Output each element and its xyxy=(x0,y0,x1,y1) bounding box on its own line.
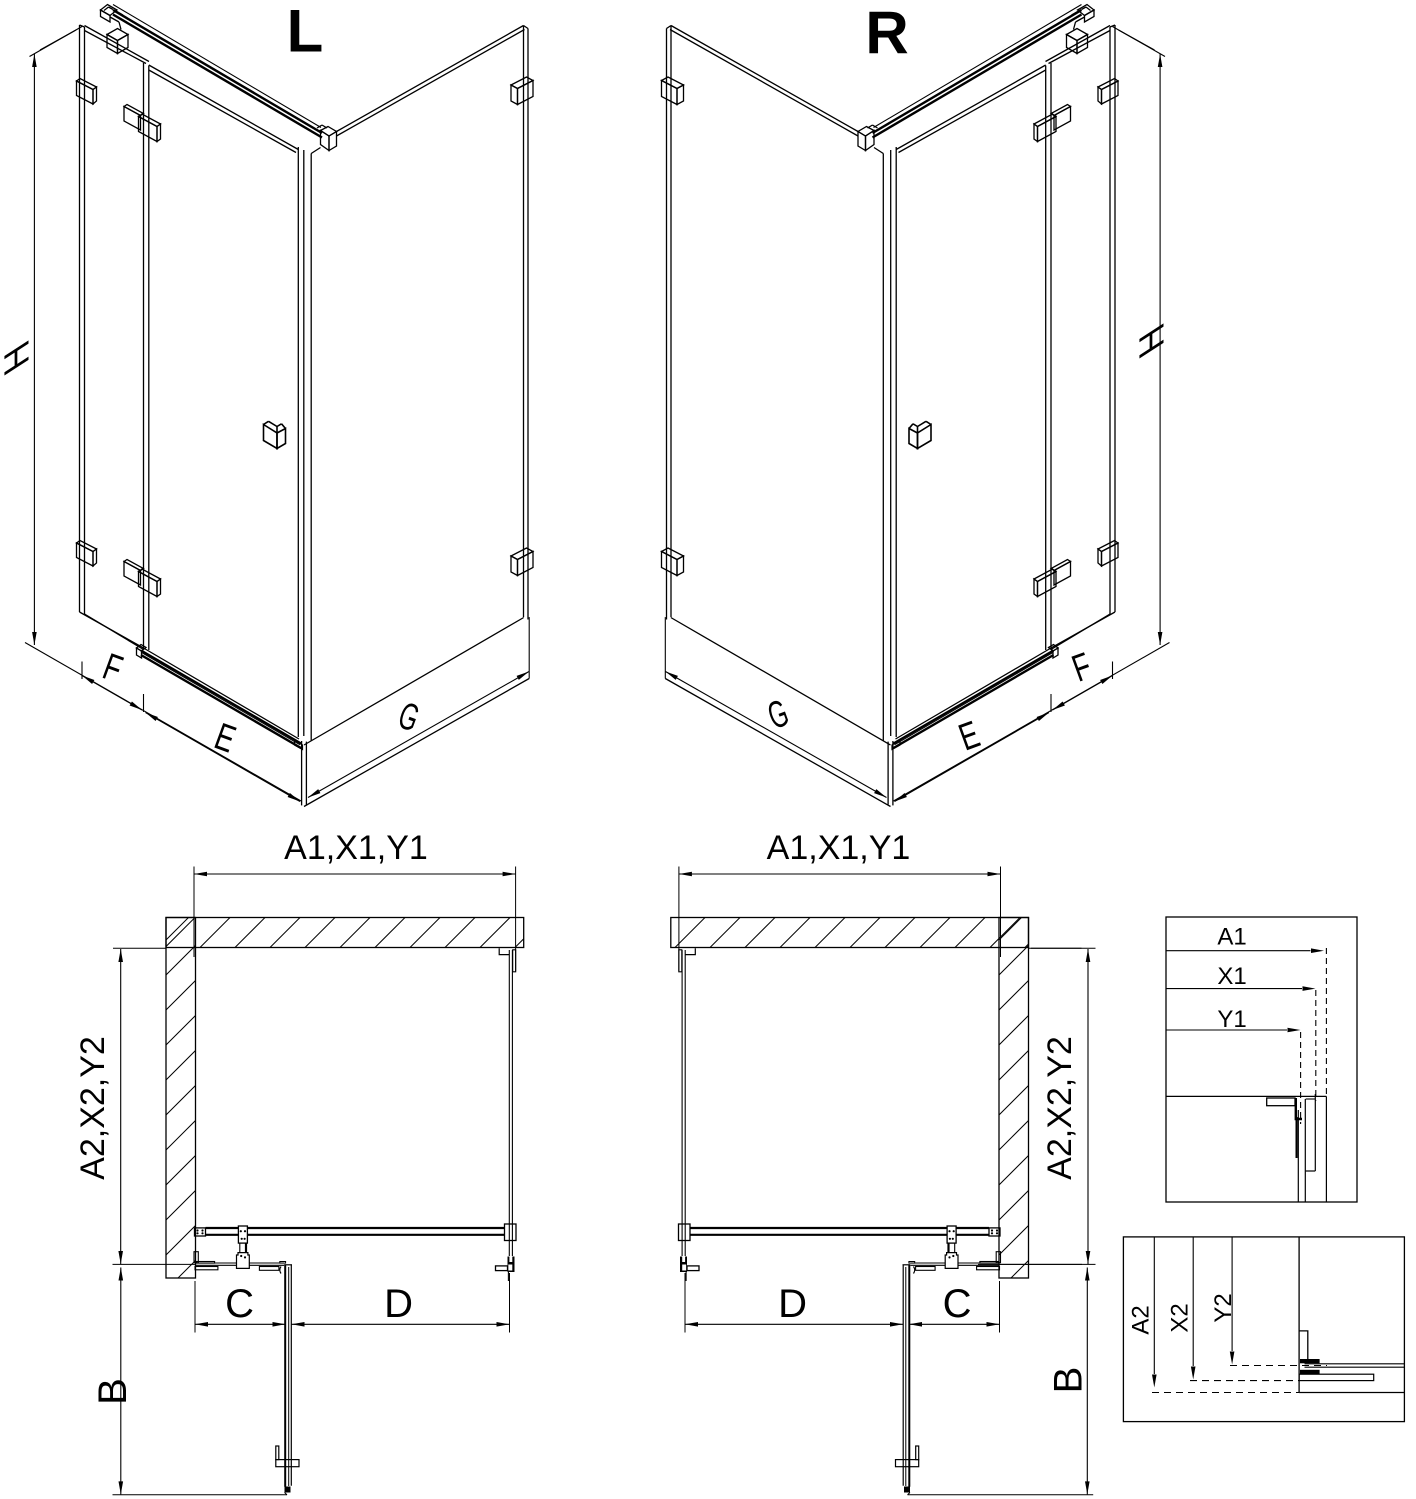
svg-text:Y1: Y1 xyxy=(1217,1006,1246,1033)
svg-text:B: B xyxy=(1047,1367,1091,1394)
svg-text:A1,X1,Y1: A1,X1,Y1 xyxy=(767,829,911,867)
svg-text:D: D xyxy=(384,1282,413,1326)
svg-text:L: L xyxy=(287,0,324,65)
svg-text:A2,X2,Y2: A2,X2,Y2 xyxy=(1041,1036,1079,1180)
svg-text:C: C xyxy=(943,1282,972,1326)
svg-text:D: D xyxy=(778,1282,807,1326)
svg-text:A1,X1,Y1: A1,X1,Y1 xyxy=(284,829,428,867)
svg-text:B: B xyxy=(91,1378,135,1405)
svg-text:Y2: Y2 xyxy=(1210,1293,1237,1322)
svg-text:R: R xyxy=(865,0,908,67)
svg-text:A2: A2 xyxy=(1128,1305,1155,1334)
svg-text:X1: X1 xyxy=(1217,963,1246,990)
svg-text:A1: A1 xyxy=(1217,924,1246,951)
svg-text:A2,X2,Y2: A2,X2,Y2 xyxy=(74,1036,112,1180)
svg-text:X2: X2 xyxy=(1167,1303,1194,1332)
svg-text:C: C xyxy=(225,1282,254,1326)
